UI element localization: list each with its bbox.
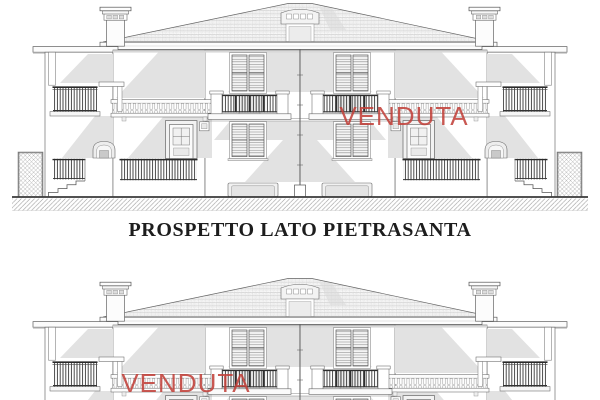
elevation-caption: PROSPETTO LATO PIETRASANTA: [128, 219, 471, 241]
venduta-label-top: VENDUTA: [339, 101, 468, 131]
venduta-label-bottom: VENDUTA: [121, 368, 250, 398]
drawing-sheet: VENDUTA PROSPETTO LATO PIETRASANTA VENDU…: [0, 0, 600, 400]
elevation-bottom: [12, 279, 588, 400]
elevation-top: [12, 4, 588, 211]
architectural-drawing: VENDUTA PROSPETTO LATO PIETRASANTA VENDU…: [0, 0, 600, 400]
